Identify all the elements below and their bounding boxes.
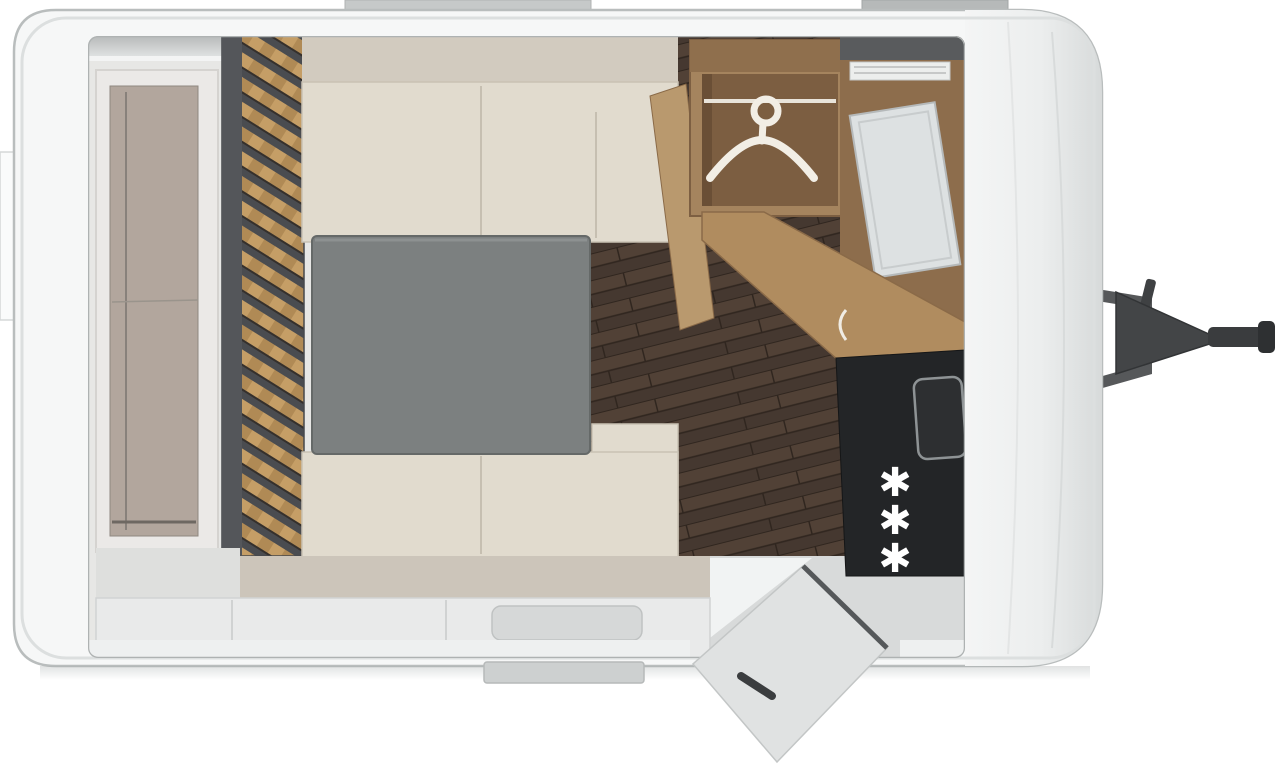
bench-cushion-bottom [302, 452, 678, 558]
vent-grille-icon [850, 62, 950, 80]
hitch-frame [1116, 292, 1222, 374]
wardrobe-interior-shadow [702, 74, 712, 206]
shelf-panel [110, 86, 198, 536]
backrest-top [302, 36, 678, 84]
drawer-handle [492, 606, 642, 640]
caravan-floorplan: Caravan floor plan - top view [0, 0, 1280, 768]
tow-hitch-icon [1085, 278, 1275, 393]
interior: ✱ ✱ ✱ [88, 36, 967, 658]
sideboard-corner [96, 548, 240, 602]
table-top [312, 236, 590, 454]
entry-step [484, 662, 644, 683]
slatted-headboard-wall [222, 36, 304, 556]
sink [913, 376, 966, 459]
bench-cushion-top [302, 82, 678, 242]
wardrobe-lintel [690, 40, 850, 72]
front-wall [965, 10, 1102, 666]
front-storage-shelf [96, 70, 218, 552]
washroom-wall [840, 36, 965, 64]
hitch-shaft [1208, 327, 1266, 347]
bottom-wall [900, 640, 965, 658]
hitch-coupler [1258, 321, 1275, 353]
sideboard-top [240, 556, 710, 602]
floorplan-canvas: Caravan floor plan - top view [0, 0, 1280, 768]
dinette-table [312, 236, 590, 454]
stove-burner-icon: ✱ [878, 536, 912, 582]
bottom-wall [88, 640, 690, 658]
slat-edge [222, 36, 242, 556]
